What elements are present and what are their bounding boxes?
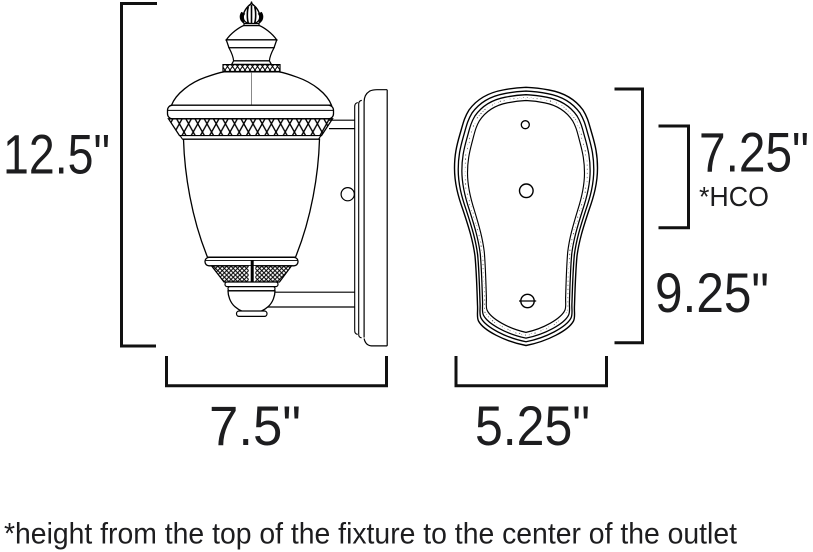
svg-text:*height from the top of the fi: *height from the top of the fixture to t… [4,518,738,551]
svg-text:9.25": 9.25" [655,261,769,324]
svg-text:7.5": 7.5" [209,394,301,457]
svg-text:5.25": 5.25" [475,394,590,457]
svg-text:7.25": 7.25" [699,121,809,184]
svg-text:*HCO: *HCO [699,181,769,212]
svg-text:12.5": 12.5" [3,123,110,186]
